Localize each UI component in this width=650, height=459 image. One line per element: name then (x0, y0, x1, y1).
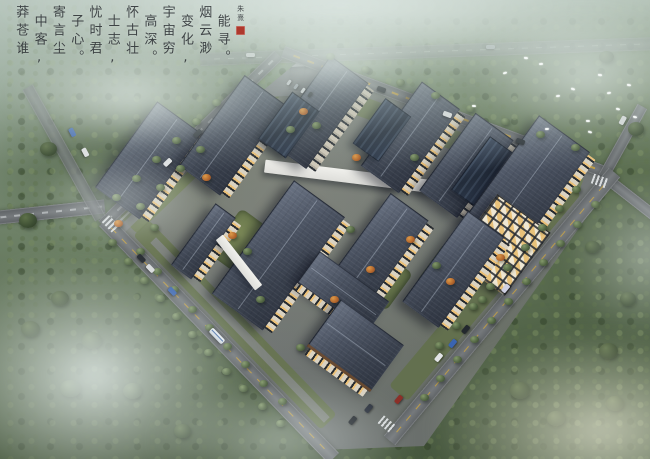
bird (545, 128, 549, 130)
calligraphy-column: 子心。 (68, 14, 82, 68)
artist-signature: 朱熹 (236, 5, 246, 23)
calligraphy-column: 变化, (178, 14, 192, 70)
calligraphy-panel: 莽苍谁 中客, 寄言尘 子心。 忧时君 士志, 怀古壮 高深。 宇宙穷 变化, … (13, 5, 246, 70)
calligraphy-column: 忧时君 (86, 5, 100, 59)
bird (588, 131, 592, 134)
bird (472, 105, 476, 107)
bird (539, 63, 543, 65)
calligraphy-column: 中客, (31, 14, 45, 70)
bird (586, 120, 590, 122)
calligraphy-column: 怀古壮 (123, 5, 137, 59)
calligraphy-column: 寄言尘 (50, 5, 64, 59)
bird (616, 108, 620, 111)
calligraphy-column: 宇宙穷 (159, 5, 173, 59)
bird (607, 92, 611, 95)
bird (627, 84, 631, 87)
aerial-campus-rendering: 莽苍谁 中客, 寄言尘 子心。 忧时君 士志, 怀古壮 高深。 宇宙穷 变化, … (0, 0, 650, 459)
bird (571, 88, 575, 91)
bird (503, 71, 507, 74)
bird (633, 116, 637, 119)
bird (598, 74, 602, 76)
artist-seal (236, 26, 245, 35)
calligraphy-column: 莽苍谁 (13, 5, 27, 59)
calligraphy-column: 烟云渺 (196, 5, 210, 59)
calligraphy-column: 高深。 (141, 14, 155, 68)
calligraphy-column: 能寻。 (214, 14, 228, 68)
calligraphy-column: 士志, (104, 14, 118, 70)
bird (556, 95, 560, 97)
bird (524, 57, 528, 59)
